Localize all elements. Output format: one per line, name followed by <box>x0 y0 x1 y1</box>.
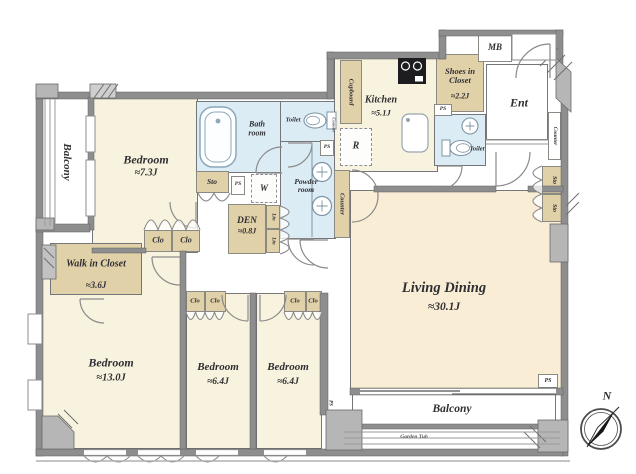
ps-2-label: PS <box>324 145 330 151</box>
clo-d2-label: Clo <box>308 297 317 304</box>
bedroom-130-name: Bedroom <box>88 357 133 370</box>
sto-right-2-label: Sto <box>551 204 557 212</box>
balcony-bottom-label: Balcony <box>433 403 472 415</box>
clo-a2-label: Clo <box>180 237 192 246</box>
shoes-closet-name: Shoes in Closet <box>438 67 482 85</box>
counter-kl-label: Counter <box>338 193 345 215</box>
kitchen-name: Kitchen <box>365 96 397 107</box>
lin-1-label: Lin <box>270 213 275 220</box>
refrigerator-label: R <box>353 142 360 153</box>
lin-2-label: Lin <box>270 237 275 244</box>
sto-right-1-label: Sto <box>551 176 557 184</box>
wic-name: Walk in Closet <box>65 260 127 271</box>
toilet-top-label: Toilet <box>286 116 301 123</box>
ps-4-label: PS <box>544 378 551 384</box>
toilet-entry-label: Toilet <box>470 145 485 152</box>
bedroom-73-name: Bedroom <box>123 154 168 167</box>
balcony-left-label: Balcony <box>60 143 72 180</box>
wic-area: ≈3.6J <box>86 281 107 291</box>
den-name: DEN <box>237 216 257 226</box>
kitchen-area: ≈5.1J <box>371 108 391 117</box>
bedroom-64b-area: ≈6.4J <box>277 377 299 387</box>
clo-c1-label: Clo <box>190 297 199 304</box>
floor-plan: Balcony Bedroom ≈7.3J Bath room Toilet C… <box>0 0 636 474</box>
bedroom-64b-name: Bedroom <box>267 362 309 374</box>
ps-3-label: PS <box>440 107 446 113</box>
den-area: ≈0.8J <box>238 228 256 237</box>
bath-label: Bath room <box>240 120 274 137</box>
sto-left-label: Sto <box>207 178 217 186</box>
bedroom-73-area: ≈7.3J <box>135 169 158 180</box>
living-area: ≈30.1J <box>428 301 460 313</box>
bedroom-64a-area: ≈6.4J <box>207 377 229 387</box>
counter-entry-label: Counter <box>551 127 557 146</box>
ps-5-label: PS <box>327 400 332 406</box>
shoes-closet-area: ≈2.2J <box>451 93 469 102</box>
toilet-counter-label: Counter <box>331 117 336 132</box>
cupboard-label: Cupboard <box>347 79 354 106</box>
clo-a1-label: Clo <box>152 237 164 246</box>
powder-label: Powder room <box>286 178 326 194</box>
bedroom-64a-name: Bedroom <box>197 362 239 374</box>
compass-icon <box>581 407 621 449</box>
entrance-label: Ent <box>510 97 528 110</box>
clo-c2-label: Clo <box>210 297 219 304</box>
ps-1-label: PS <box>235 182 241 188</box>
living-name: Living Dining <box>402 281 486 297</box>
clo-d1-label: Clo <box>290 297 299 304</box>
room-toilet-entry <box>434 114 486 166</box>
bedroom-130-area: ≈13.0J <box>96 372 125 383</box>
garden-strip-label: Garden Tub <box>400 435 427 441</box>
washer-label: W <box>260 184 268 194</box>
mb-label: MB <box>488 43 502 53</box>
north-label: N <box>603 390 612 403</box>
